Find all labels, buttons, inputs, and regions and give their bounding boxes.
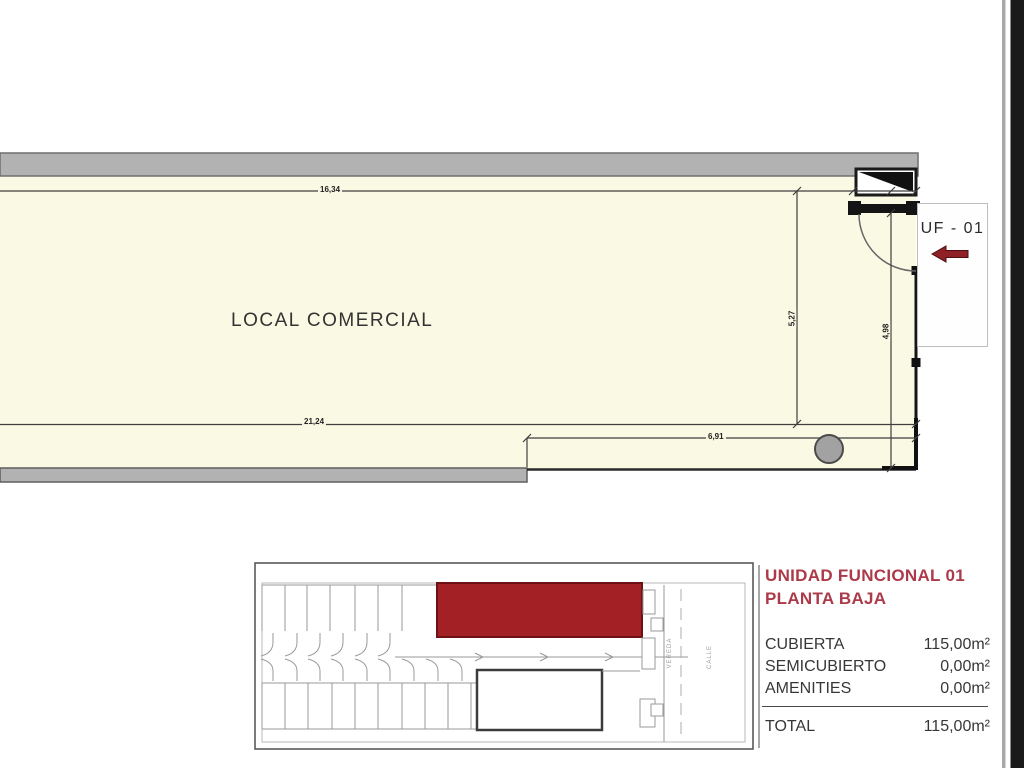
legend-row-semicubierto: SEMICUBIERTO 0,00m²	[765, 658, 990, 677]
street-label-vereda: VEREDA	[667, 623, 673, 683]
legend-title-line1: UNIDAD FUNCIONAL 01	[765, 566, 965, 586]
total-label: TOTAL	[765, 718, 815, 736]
dimension-height-left: 5,27	[787, 309, 796, 329]
street-label-calle: CALLE	[707, 627, 713, 687]
key-plan	[255, 563, 753, 749]
highlighted-unit	[437, 583, 642, 637]
legend-divider	[762, 706, 988, 707]
scan-border	[1011, 0, 1024, 768]
unit-entry-arrow-icon	[930, 244, 976, 264]
row-label: SEMICUBIERTO	[765, 658, 886, 676]
row-label: AMENITIES	[765, 680, 851, 698]
column	[815, 435, 843, 463]
legend-row-amenities: AMENITIES 0,00m²	[765, 680, 990, 699]
unit-tag-box: UF - 01	[917, 203, 988, 347]
sheet-edge-line	[1002, 0, 1006, 768]
row-value: 0,00m²	[940, 658, 990, 676]
row-value: 115,00m²	[924, 636, 990, 654]
row-value: 0,00m²	[940, 680, 990, 698]
dimension-top-width: 16,34	[318, 185, 342, 194]
dimension-height-right: 4,98	[881, 322, 890, 342]
bottom-left-wall	[0, 468, 527, 482]
legend-row-total: TOTAL 115,00m²	[765, 718, 990, 737]
unit-tag-label: UF - 01	[918, 220, 987, 238]
legend-row-cubierta: CUBIERTA 115,00m²	[765, 636, 990, 655]
wall-node	[912, 358, 921, 367]
dimension-bottom-left: 21,24	[302, 417, 326, 426]
row-label: CUBIERTA	[765, 636, 844, 654]
top-wall	[0, 153, 918, 176]
total-value: 115,00m²	[924, 718, 990, 736]
unit-summary: UNIDAD FUNCIONAL 01 PLANTA BAJA CUBIERTA…	[762, 566, 990, 748]
legend-title-line2: PLANTA BAJA	[765, 589, 886, 609]
key-plan-building-block	[477, 670, 602, 730]
room-label: LOCAL COMERCIAL	[231, 310, 433, 332]
dimension-bottom-right: 6,91	[706, 432, 726, 441]
